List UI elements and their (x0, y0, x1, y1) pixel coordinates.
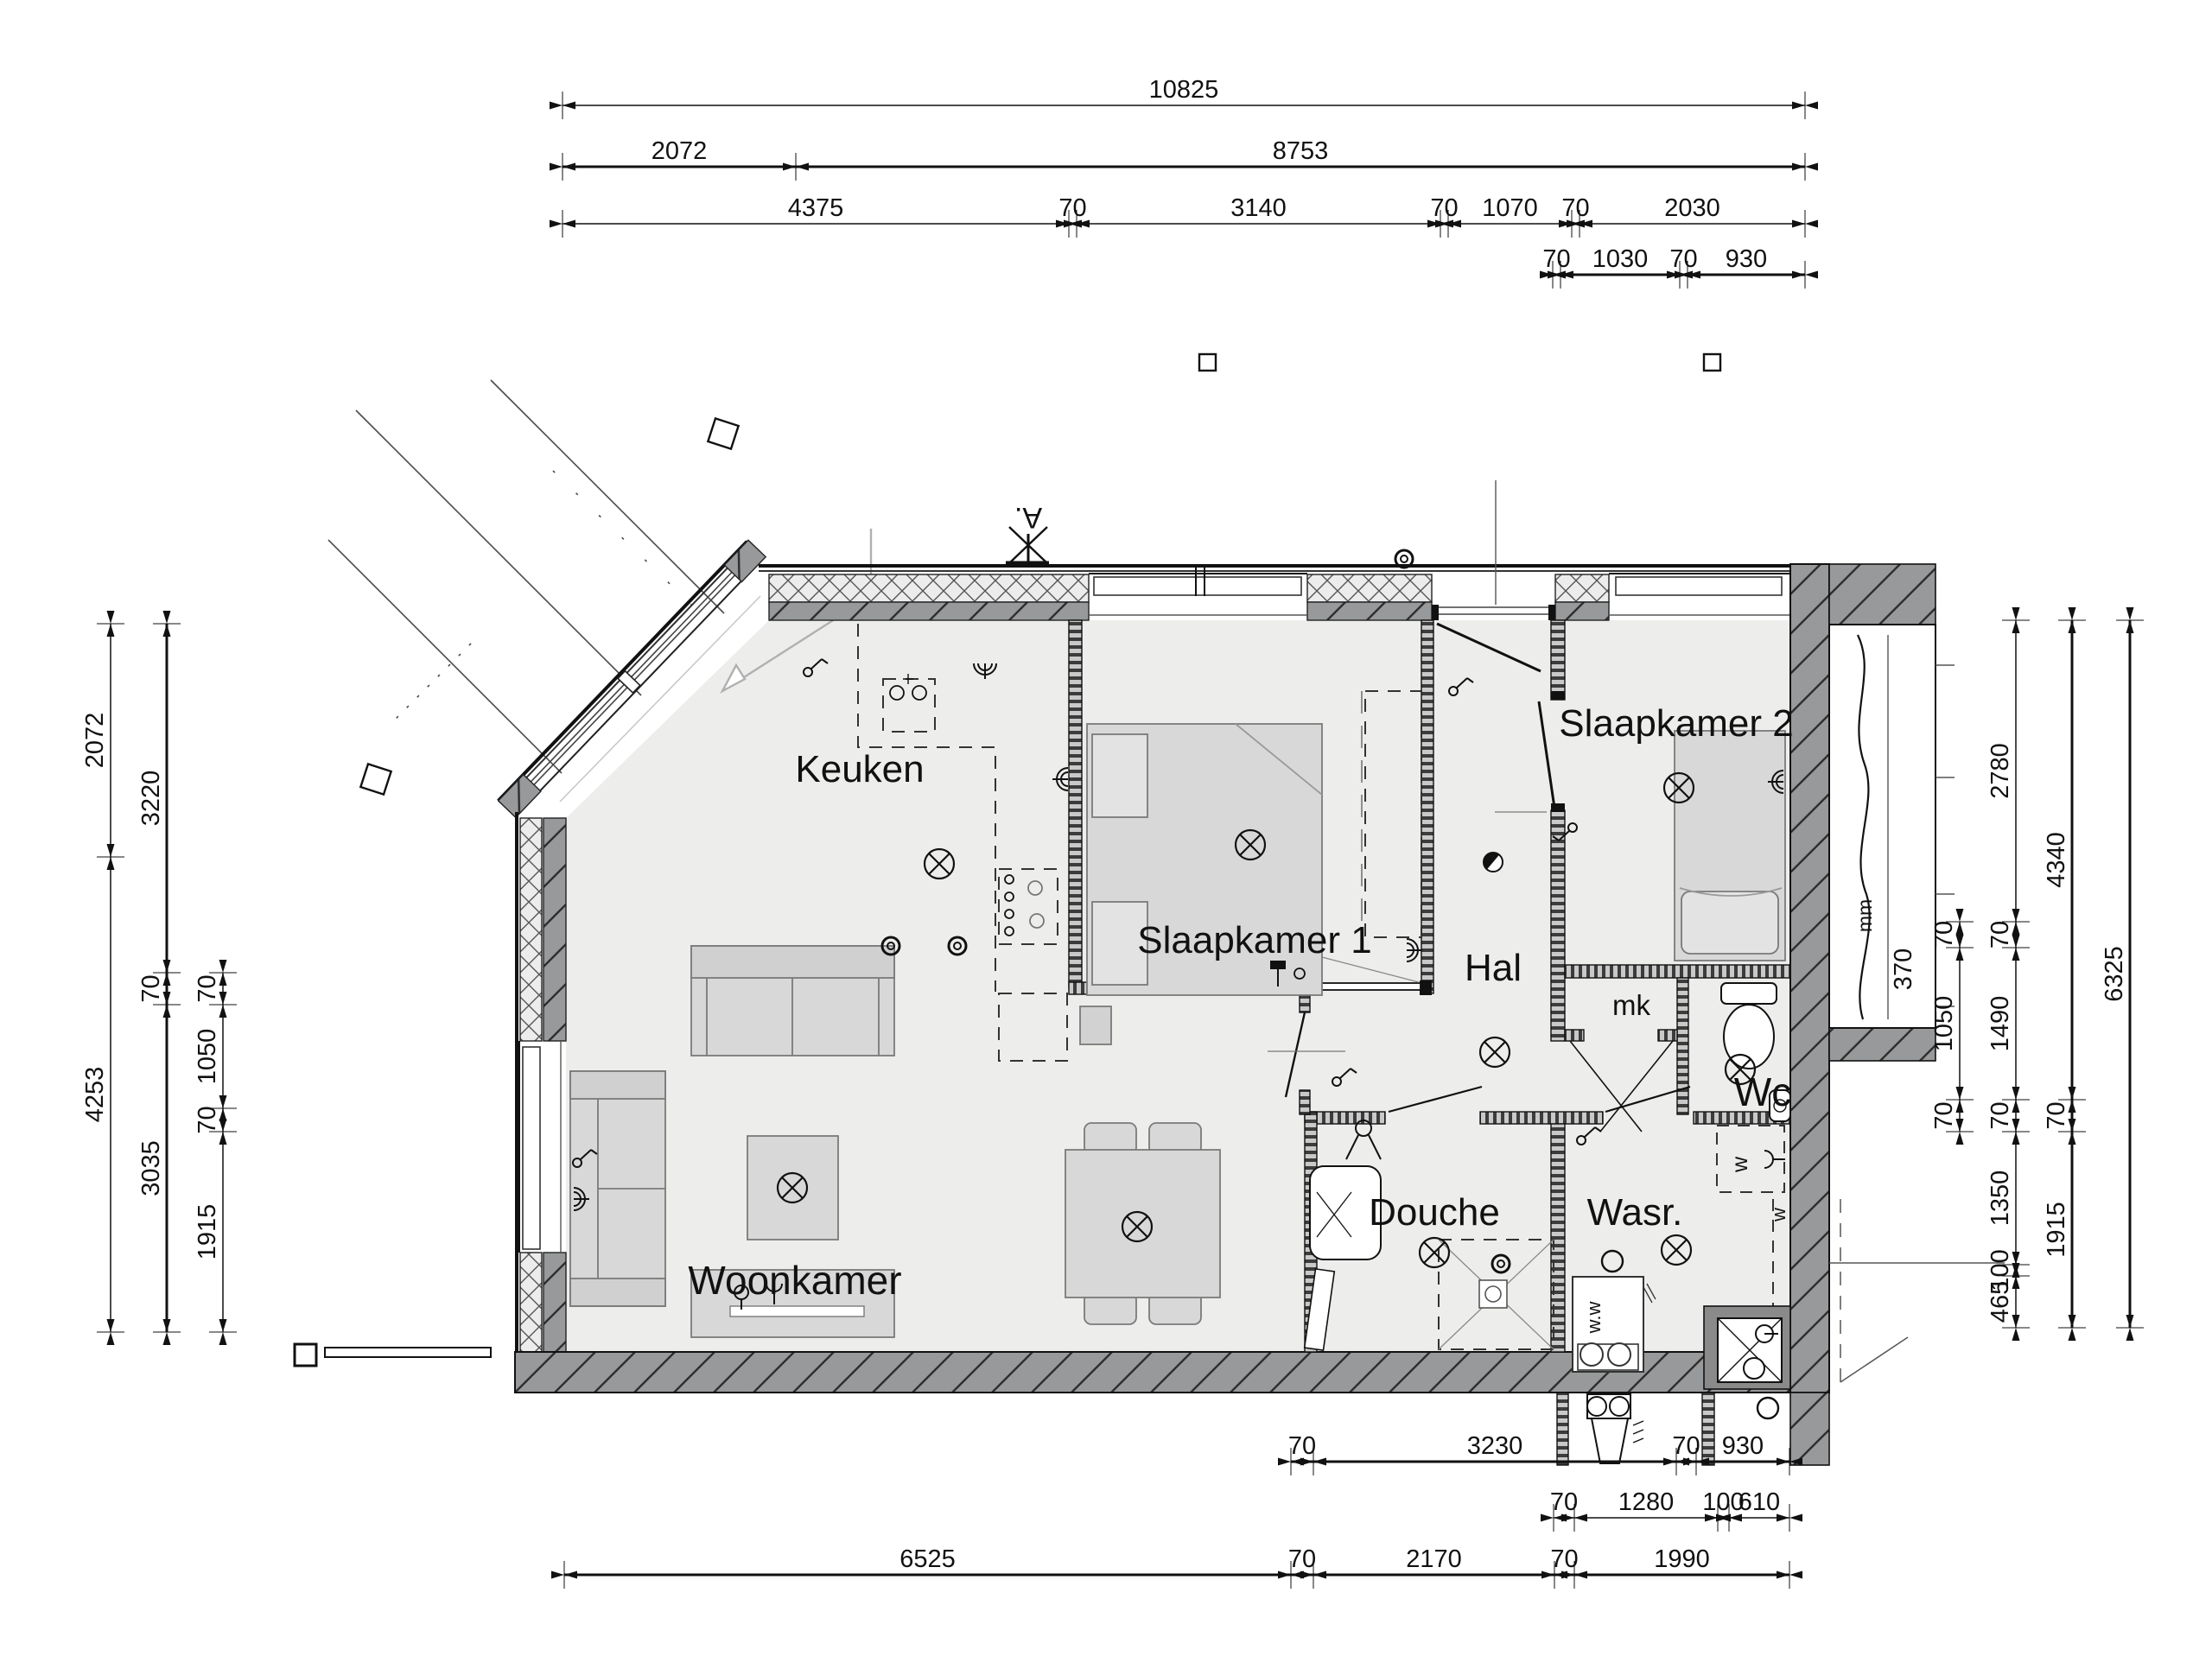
dim-label: 70 (1288, 1432, 1316, 1460)
floorplan-drawing: Keuken Slaapkamer 1 Slaapkamer 2 Hal mk … (0, 0, 2212, 1656)
boiler-label: w (1728, 1156, 1752, 1173)
dim-label: 6325 (2101, 946, 2128, 1002)
dimension-chain: 2780701490701350100465 (1986, 607, 2030, 1341)
room-label-mk: mk (1612, 989, 1650, 1021)
dim-label: 70 (194, 974, 221, 1002)
dim-label: 70 (1430, 194, 1458, 222)
room-label-hal: Hal (1465, 947, 1522, 989)
dim-label: 610 (1738, 1488, 1780, 1516)
dimension-chain: 6525702170701990 (551, 1545, 1802, 1589)
window-top-slaapkamer1 (1089, 568, 1307, 615)
dim-label: 1990 (1654, 1545, 1710, 1573)
dim-label: 1915 (2043, 1202, 2070, 1258)
dim-label: 1030 (1592, 245, 1649, 273)
exterior-right-lines (1829, 1199, 2005, 1386)
dimension-chain: 10825 (550, 76, 1818, 119)
dimension-chain: 4375703140701070702030 (550, 194, 1818, 238)
dimension-chain: 6325 (2101, 607, 2144, 1341)
dim-label: 2170 (1406, 1545, 1462, 1573)
dim-label: 2780 (1986, 743, 2014, 799)
room-label-douche: Douche (1369, 1191, 1500, 1234)
toilet-below-icon (1587, 1394, 1643, 1463)
dim-label: 1915 (194, 1204, 221, 1260)
dim-label: 4253 (81, 1067, 109, 1123)
dim-label: 4375 (788, 194, 844, 222)
floorplan-canvas: Keuken Slaapkamer 1 Slaapkamer 2 Hal mk … (0, 0, 2212, 1656)
room-label-slaapkamer2: Slaapkamer 2 (1559, 702, 1793, 745)
site-boundary-lines (328, 380, 724, 773)
dimension-chain: 701050701915 (194, 960, 237, 1345)
dim-label: 6525 (899, 1545, 956, 1573)
wall-w-label: w (1768, 1208, 1789, 1222)
dim-label: 1350 (1986, 1171, 2014, 1227)
dimension-chain: 70323070930 (1278, 1432, 1802, 1475)
dim-label: 930 (1726, 245, 1767, 273)
section-marker-label: A. (1014, 501, 1042, 534)
dimension-chain: 70105070 (1930, 909, 1974, 1145)
dining-set (1065, 1123, 1220, 1324)
dim-label: 70 (194, 1106, 221, 1133)
dim-label: 8753 (1273, 137, 1329, 165)
mm-label: mm (1853, 899, 1876, 932)
dimension-chain: 70103070930 (1540, 245, 1818, 289)
dim-label: 3140 (1230, 194, 1287, 222)
dim-label: 70 (1550, 1545, 1578, 1573)
washer-label: w.w (1583, 1302, 1605, 1335)
dim-label: 10825 (1149, 76, 1219, 104)
dim-label: 70 (2043, 1101, 2070, 1129)
dim-label: 2030 (1664, 194, 1720, 222)
dim-label: 70 (1561, 194, 1589, 222)
circle-icon (1758, 1398, 1778, 1418)
dim-label: 3220 (137, 771, 165, 827)
dim-label: 1490 (1986, 996, 2014, 1052)
dimension-chain: 20728753 (550, 137, 1818, 181)
dim-label: 70 (1542, 245, 1570, 273)
dim-label: 70 (1930, 921, 1958, 949)
dim-label: 3230 (1467, 1432, 1523, 1460)
dim-label: 70 (1669, 245, 1697, 273)
room-label-wc: Wc (1734, 1069, 1791, 1114)
window-left-woonkamer (519, 1041, 561, 1253)
dim-label: 70 (1672, 1432, 1700, 1460)
window-top-slaapkamer2 (1609, 574, 1790, 615)
room-label-slaapkamer1: Slaapkamer 1 (1137, 919, 1371, 961)
dim-label: 70 (1288, 1545, 1316, 1573)
dim-label: 70 (1550, 1488, 1578, 1516)
dim-label: 1050 (1930, 996, 1958, 1052)
shaft-box (1704, 1306, 1790, 1389)
dim-label: 2072 (652, 137, 708, 165)
room-label-woonkamer: Woonkamer (688, 1258, 901, 1303)
room-label-wasruimte: Wasr. (1587, 1191, 1683, 1234)
bed-slaapkamer2 (1675, 731, 1785, 961)
dim-label-standalone: 370 (1890, 949, 1917, 990)
dim-label: 70 (1058, 194, 1086, 222)
scale-bar (295, 1344, 491, 1366)
room-label-keuken: Keuken (795, 748, 924, 790)
dim-label: 1280 (1618, 1488, 1675, 1516)
dim-label: 2072 (81, 713, 109, 769)
dimension-chain: 3220703035 (137, 611, 181, 1345)
dim-label: 1070 (1482, 194, 1538, 222)
dim-label: 1050 (194, 1029, 221, 1085)
dimension-chain: 4340701915 (2043, 607, 2086, 1341)
dim-label: 70 (137, 974, 165, 1002)
dim-label: 4340 (2043, 832, 2070, 888)
dim-label: 465 (1986, 1281, 2014, 1323)
sofa-small (570, 1071, 665, 1306)
dim-label: 3035 (137, 1140, 165, 1196)
dim-label: 70 (1986, 921, 2014, 949)
sofa-large (691, 946, 894, 1056)
dimension-chain: 701280100610 (1541, 1488, 1802, 1532)
dim-label: 70 (1930, 1101, 1958, 1129)
dim-label: 930 (1722, 1432, 1764, 1460)
dim-label: 70 (1986, 1101, 2014, 1129)
dimension-chain: 20724253 (81, 611, 124, 1345)
